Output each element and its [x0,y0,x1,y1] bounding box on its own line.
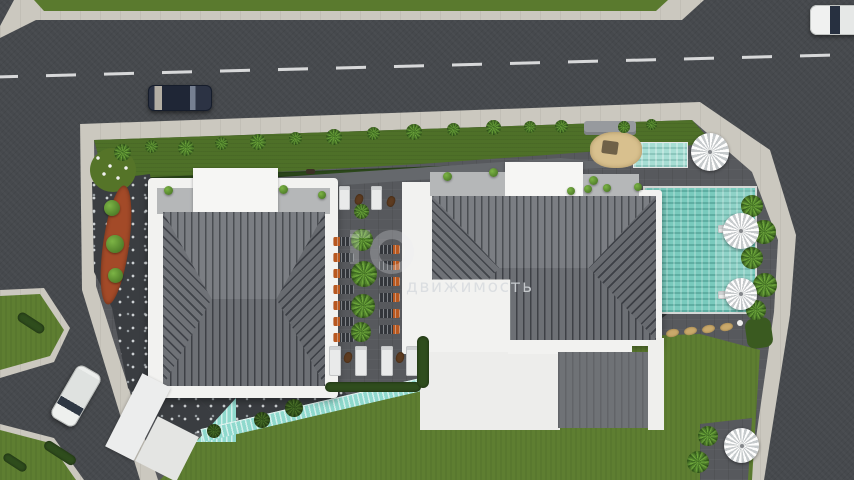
aerial-render: движимость [0,0,854,480]
driveway-bush [603,184,611,192]
rooftop-bush [318,191,326,199]
palm-tree [351,294,375,318]
right-building-edge [648,338,664,430]
palm-tree [114,144,131,161]
rooftop-bush [164,186,173,195]
palm-tree [178,140,194,156]
rooftop-bush [489,168,498,177]
car-white-partial [810,5,854,35]
watermark-text: движимость [406,277,534,297]
palm-tree [486,120,501,135]
watermark-logo-bar-icon [350,230,370,238]
sun-lounger-white [355,346,367,376]
rooftop-bush [589,176,598,185]
courtyard-hedge [325,382,421,392]
palm-tree [289,132,302,145]
palm-tree [215,137,228,150]
sun-lounger-white [339,186,350,210]
left-building-roof [163,212,325,386]
palm-tree [250,134,266,150]
driveway-bush [584,185,592,193]
watermark-logo-bar-icon [350,234,359,264]
planter-bush [108,268,123,283]
palm-tree [687,451,709,473]
palm-tree [741,247,763,269]
sun-lounger-white [329,346,341,376]
planter-bush [106,235,124,253]
palm-tree [351,261,377,287]
rooftop-bush [443,172,452,181]
parasol [691,133,729,171]
sun-lounger-orange [379,293,400,302]
watermark-logo-ring-icon [370,230,414,274]
palm-tree [207,424,221,438]
sun-lounger-white [371,186,382,210]
sun-lounger-orange [379,277,400,286]
right-building-white-wing [420,352,560,430]
sun-lounger-white [381,346,393,376]
palm-tree [555,120,568,133]
parasol [724,428,759,463]
driveway-planter [306,169,315,174]
sun-lounger-orange [379,325,400,334]
deck-ball [737,320,743,326]
right-building-white-wing [402,182,434,286]
east-planting-bed [744,316,774,349]
palm-tree [285,399,303,417]
planter-bush [104,200,120,216]
palm-tree [367,127,380,140]
play-equipment [601,140,619,155]
courtyard-hedge [417,336,429,388]
palm-tree [698,426,718,446]
palm-tree [406,124,422,140]
palm-tree [351,322,371,342]
right-building-south-terrace [558,352,650,428]
left-building-terrace [157,188,195,214]
parasol [723,213,759,249]
driveway-bush [567,187,575,195]
palm-tree [618,121,630,133]
rooftop-bush [634,183,642,191]
left-building-rooftop-block [193,168,278,212]
palm-tree [254,412,270,428]
palm-tree [145,140,158,153]
palm-tree [646,119,657,130]
palm-tree [326,129,342,145]
rooftop-bush [279,185,288,194]
palm-tree [524,121,536,133]
palm-tree [354,204,369,219]
sun-lounger-orange [379,309,400,318]
sun-lounger-orange [333,285,354,294]
sun-lounger-orange [333,317,354,326]
car-dark-sedan [148,85,212,111]
parasol [725,278,757,310]
palm-tree [447,123,460,136]
